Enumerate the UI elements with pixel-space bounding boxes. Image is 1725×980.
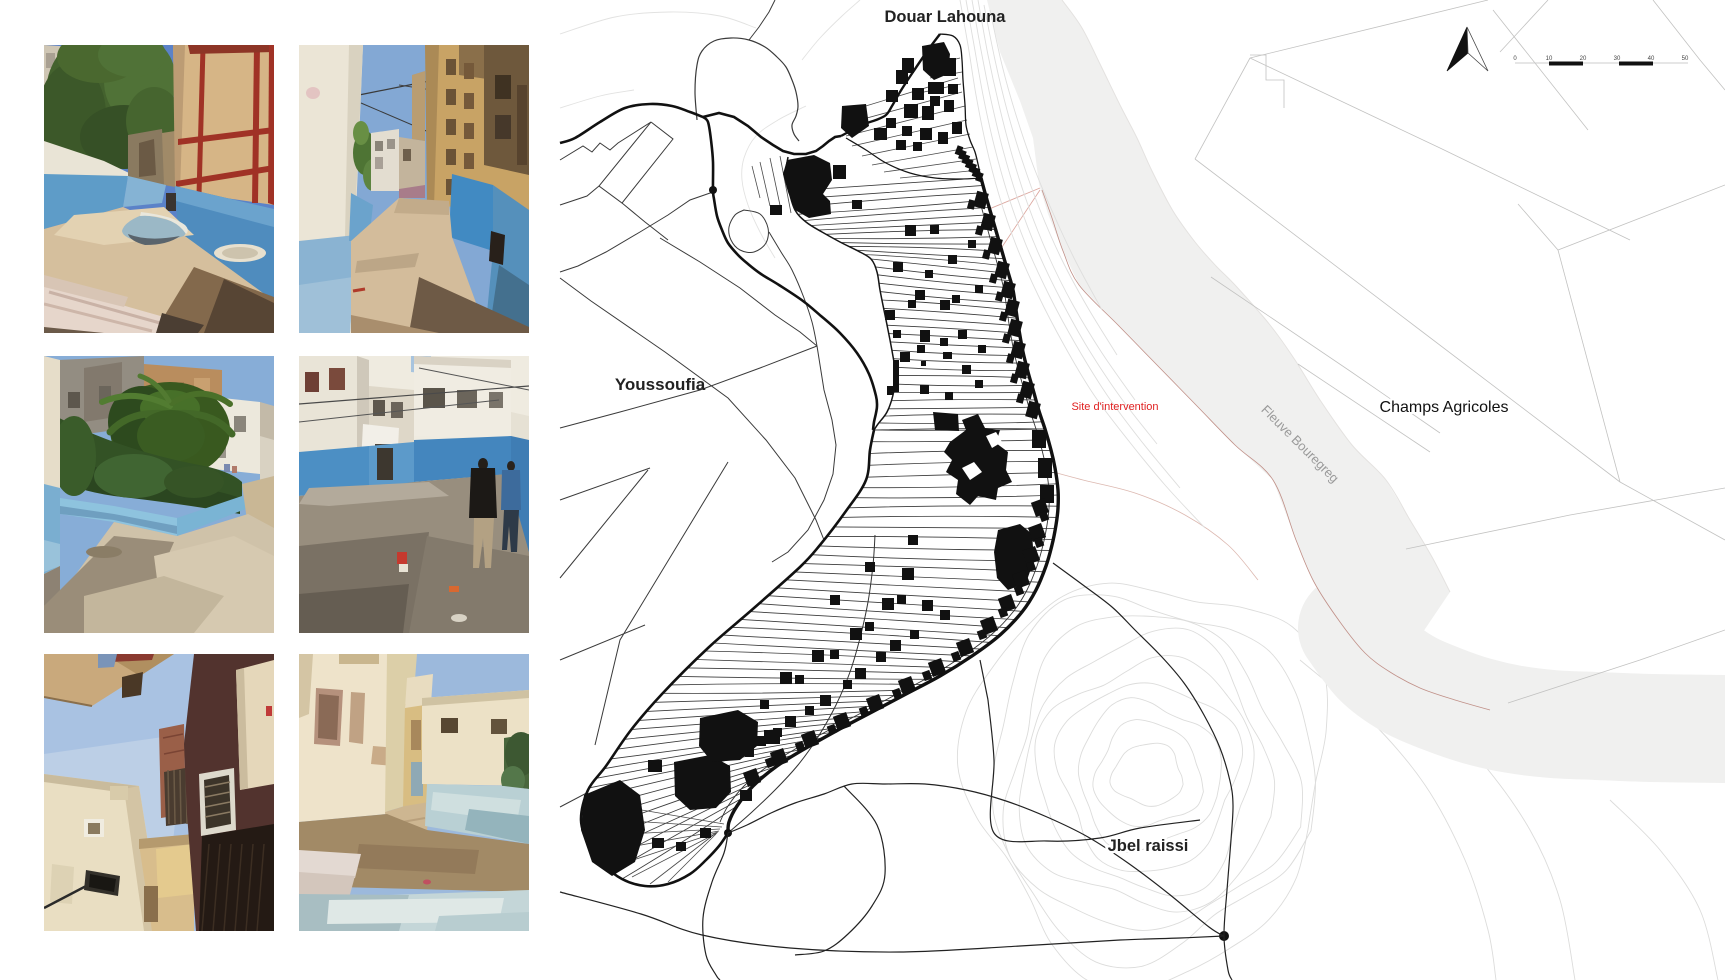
svg-text:Champs Agricoles: Champs Agricoles bbox=[1380, 399, 1509, 416]
svg-text:40: 40 bbox=[1648, 56, 1655, 62]
svg-text:Douar Lahouna: Douar Lahouna bbox=[884, 8, 1006, 26]
svg-text:10: 10 bbox=[1546, 56, 1553, 62]
svg-text:Youssoufia: Youssoufia bbox=[615, 375, 706, 394]
svg-text:Site d'intervention: Site d'intervention bbox=[1071, 401, 1158, 413]
svg-text:Jbel raissi: Jbel raissi bbox=[1108, 837, 1189, 855]
svg-text:50: 50 bbox=[1682, 56, 1689, 62]
svg-text:30: 30 bbox=[1614, 56, 1621, 62]
svg-text:20: 20 bbox=[1580, 56, 1587, 62]
